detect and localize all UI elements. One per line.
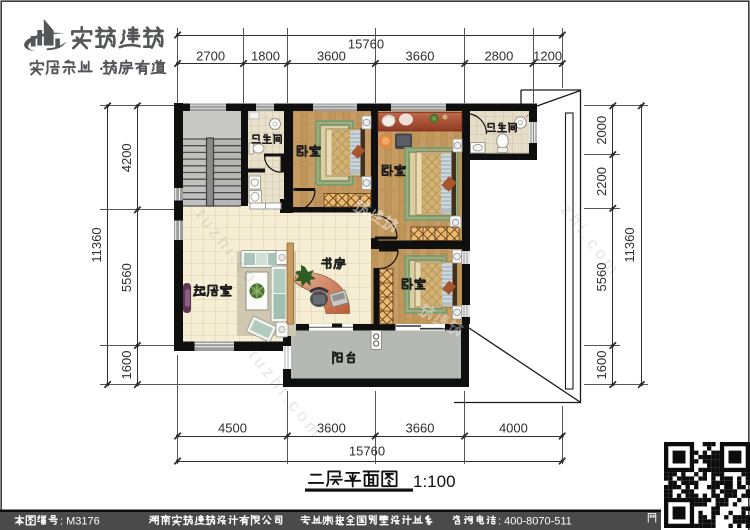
svg-text:4500: 4500 [218,421,247,436]
svg-text:1200: 1200 [533,49,562,64]
svg-text:1600: 1600 [594,351,609,380]
svg-text:3660: 3660 [406,49,435,64]
svg-text:5560: 5560 [594,263,609,292]
svg-text:1600: 1600 [119,351,134,380]
svg-text:5560: 5560 [119,263,134,292]
svg-text:11360: 11360 [89,227,104,262]
svg-text:3600: 3600 [317,421,346,436]
svg-text:2800: 2800 [484,49,513,64]
svg-text:2000: 2000 [594,116,609,145]
svg-text:2200: 2200 [594,167,609,196]
svg-text:1:100: 1:100 [413,472,456,491]
svg-text:: M3176: : M3176 [60,516,100,528]
svg-text:4200: 4200 [119,143,134,172]
svg-text:: 400-8070-511: : 400-8070-511 [498,516,572,528]
svg-text:1800: 1800 [251,49,280,64]
svg-text:3660: 3660 [406,421,435,436]
svg-text:11360: 11360 [622,227,637,262]
svg-text:15760: 15760 [349,444,385,459]
svg-text:4000: 4000 [499,421,528,436]
svg-text:15760: 15760 [348,37,384,52]
svg-text:3600: 3600 [317,49,346,64]
svg-text:2700: 2700 [196,49,225,64]
